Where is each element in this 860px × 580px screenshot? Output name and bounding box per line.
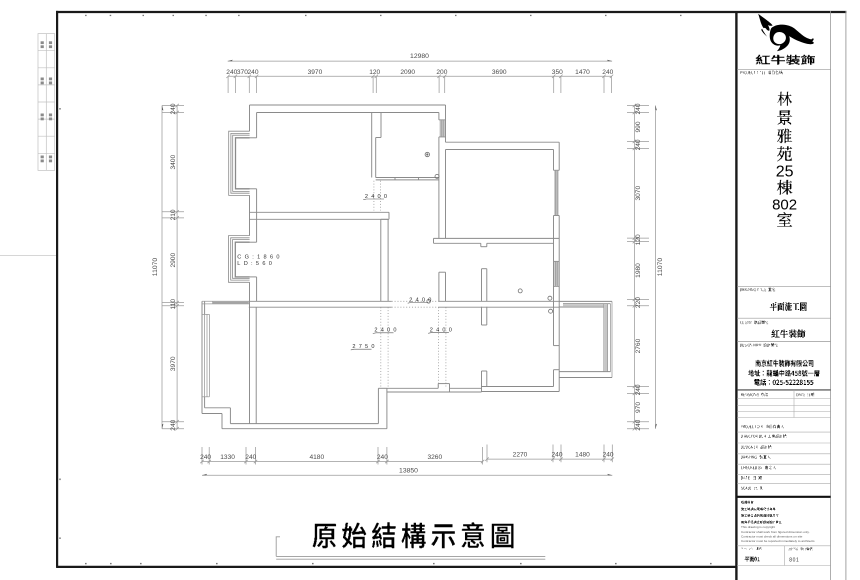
svg-text:240: 240 [247,69,258,76]
svg-text:240: 240 [245,454,256,461]
svg-text:240: 240 [377,454,388,461]
svg-text:220: 220 [635,297,642,308]
svg-text:1980: 1980 [635,263,642,278]
svg-text:This drawing is copyright: This drawing is copyright [741,525,775,529]
svg-text:200: 200 [436,69,447,76]
svg-text:Contractor shall work from fig: Contractor shall work from figured dimen… [741,530,810,534]
svg-text:1330: 1330 [220,454,235,461]
svg-text:3690: 3690 [492,69,507,76]
svg-text:LD:560: LD:560 [237,261,275,267]
svg-text:4180: 4180 [309,454,324,461]
svg-text:210: 210 [170,209,177,220]
svg-text:3260: 3260 [427,454,442,461]
svg-text:13850: 13850 [399,468,418,475]
svg-text:240: 240 [603,452,614,459]
svg-text:240: 240 [170,103,177,114]
svg-text:970: 970 [635,402,642,413]
svg-text:350: 350 [552,69,563,76]
svg-text:110: 110 [170,299,177,310]
svg-text:240: 240 [602,69,613,76]
svg-text:3070: 3070 [635,186,642,201]
svg-text:120: 120 [369,69,380,76]
svg-text:11070: 11070 [152,258,159,277]
svg-text:240: 240 [635,384,642,395]
svg-text:1470: 1470 [575,69,590,76]
svg-text:801: 801 [789,558,799,564]
svg-text:CG:1860: CG:1860 [237,254,282,260]
svg-text:Contractor must check all dime: Contractor must check all dimensions on … [741,535,803,539]
svg-text:11070: 11070 [657,258,664,277]
svg-text:240: 240 [170,419,177,430]
svg-text:2090: 2090 [400,69,415,76]
svg-text:25: 25 [776,163,794,180]
svg-text:2900: 2900 [170,253,177,268]
svg-text:2270: 2270 [513,452,528,459]
svg-text:240: 240 [200,454,211,461]
svg-text:3970: 3970 [308,69,323,76]
svg-text:3400: 3400 [170,155,177,170]
svg-text:990: 990 [635,121,642,132]
svg-text:240: 240 [551,452,562,459]
svg-text:12980: 12980 [410,53,429,60]
svg-text:240: 240 [635,139,642,150]
svg-text:120: 120 [635,234,642,245]
svg-text:2760: 2760 [635,338,642,353]
svg-text:3970: 3970 [170,356,177,371]
svg-text:240: 240 [635,419,642,430]
svg-text:240: 240 [635,103,642,114]
svg-text:Contractor must be reported im: Contractor must be reported immediately … [741,539,815,543]
svg-text:802: 802 [772,197,797,214]
svg-text:1480: 1480 [575,452,590,459]
